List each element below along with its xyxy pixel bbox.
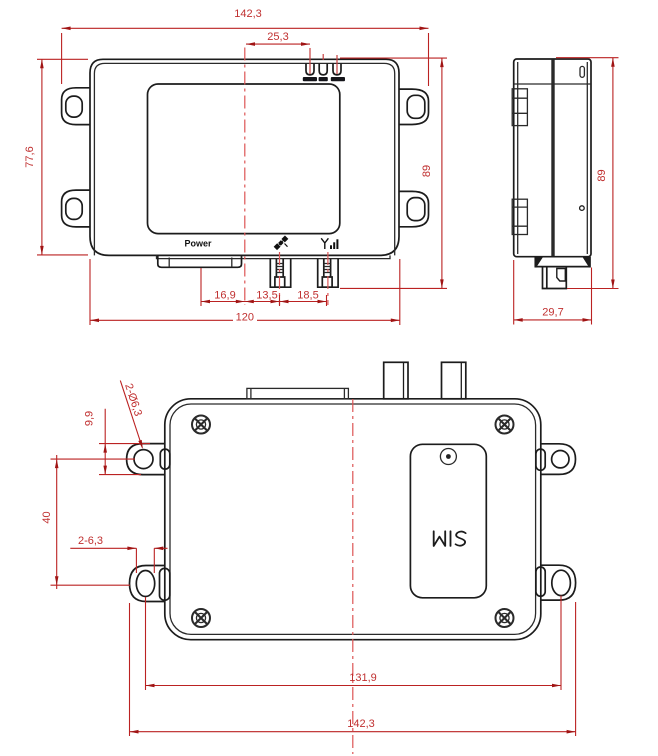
svg-text:120: 120 [236, 312, 254, 324]
svg-text:13,5: 13,5 [256, 290, 277, 302]
svg-text:9,9: 9,9 [84, 411, 96, 426]
svg-text:2-6,3: 2-6,3 [78, 535, 103, 547]
svg-text:142,3: 142,3 [234, 8, 262, 20]
svg-text:16,9: 16,9 [214, 290, 235, 302]
svg-text:77,6: 77,6 [24, 146, 36, 167]
svg-text:29,7: 29,7 [542, 307, 563, 319]
svg-text:Power: Power [184, 239, 212, 249]
svg-text:18,5: 18,5 [297, 290, 318, 302]
svg-text:40: 40 [41, 511, 53, 523]
svg-text:89: 89 [596, 169, 608, 181]
svg-text:89: 89 [421, 165, 433, 177]
svg-text:142,3: 142,3 [347, 718, 375, 730]
svg-text:25,3: 25,3 [267, 31, 288, 43]
svg-text:131,9: 131,9 [349, 672, 377, 684]
